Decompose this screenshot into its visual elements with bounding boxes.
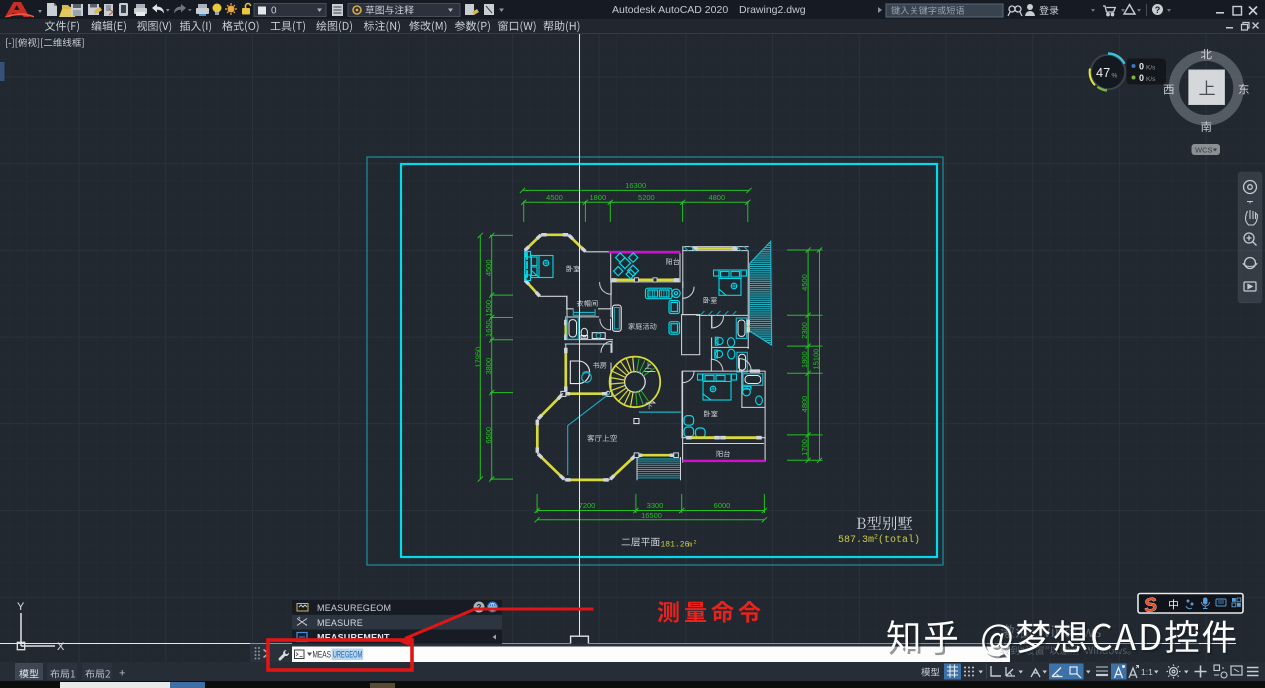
svg-text:47: 47 (1096, 65, 1110, 80)
svg-text:UREGEOM: UREGEOM (333, 650, 363, 660)
svg-text:4800: 4800 (800, 396, 809, 413)
svg-text:3300: 3300 (647, 501, 664, 510)
svg-text:K/s: K/s (1146, 65, 1156, 72)
svg-text:+: + (119, 668, 125, 680)
svg-text:MEASUREGEOM: MEASUREGEOM (317, 603, 391, 613)
svg-text:4500: 4500 (484, 259, 493, 276)
svg-text:4500: 4500 (546, 193, 563, 202)
svg-text:5200: 5200 (638, 193, 655, 202)
svg-text:0: 0 (1139, 62, 1144, 72)
svg-text:?: ? (1155, 5, 1161, 15)
svg-text:181.26: 181.26 (661, 541, 690, 550)
svg-text:0: 0 (1139, 73, 1144, 83)
svg-text:17950: 17950 (473, 347, 482, 368)
svg-text:Y: Y (17, 601, 25, 613)
svg-text:X: X (57, 641, 65, 653)
svg-text:MEASURE: MEASURE (317, 618, 363, 628)
svg-text:7200: 7200 (579, 501, 596, 510)
svg-text:1500: 1500 (484, 300, 493, 317)
svg-text:MEAS: MEAS (313, 650, 332, 660)
svg-text:6000: 6000 (714, 501, 731, 510)
svg-text:3800: 3800 (484, 358, 493, 375)
svg-text:2300: 2300 (800, 322, 809, 339)
svg-text:16300: 16300 (625, 181, 646, 190)
svg-text:4500: 4500 (800, 274, 809, 291)
svg-text:K/s: K/s (1146, 76, 1156, 83)
svg-text:1700: 1700 (800, 439, 809, 456)
svg-text:6500: 6500 (484, 427, 493, 444)
svg-text:587.3m: 587.3m (838, 535, 874, 546)
svg-text:Autodesk AutoCAD 2020: Autodesk AutoCAD 2020 (612, 4, 728, 16)
svg-text:1800: 1800 (589, 193, 606, 202)
svg-text:4800: 4800 (708, 193, 725, 202)
svg-text:1:1: 1:1 (1141, 667, 1153, 677)
svg-text:1650: 1650 (484, 320, 493, 337)
svg-text:0: 0 (271, 6, 277, 17)
svg-text:m: m (688, 542, 692, 550)
svg-text:16500: 16500 (641, 511, 662, 520)
svg-text:WCS: WCS (1195, 146, 1213, 155)
svg-text:(total): (total) (878, 534, 920, 546)
svg-text:%: % (1112, 73, 1118, 80)
svg-text:15100: 15100 (812, 349, 821, 370)
svg-text:Drawing2.dwg: Drawing2.dwg (739, 4, 806, 16)
svg-text:1800: 1800 (800, 351, 809, 368)
svg-text:2: 2 (694, 540, 697, 546)
